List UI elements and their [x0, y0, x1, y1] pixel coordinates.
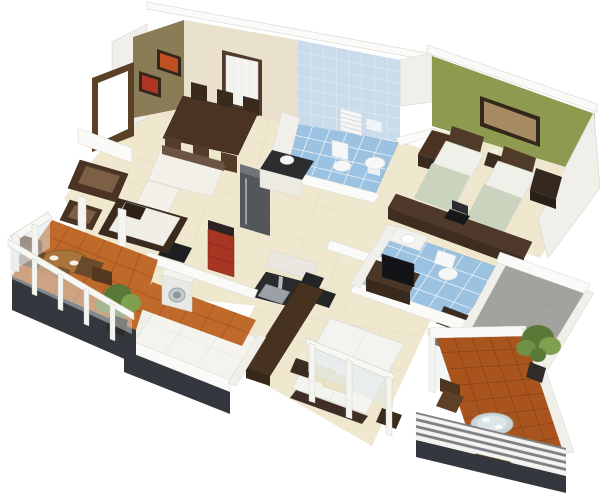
rail-post-a3 — [386, 376, 392, 436]
floorplan-canvas — [0, 0, 600, 495]
right-napkin-1 — [482, 418, 490, 423]
right-napkin-2 — [495, 425, 503, 430]
sink1-bowl — [365, 157, 385, 169]
toilet2-bowl — [439, 268, 458, 280]
lrail-sw-post4 — [110, 303, 115, 341]
sink2-basin — [401, 235, 415, 244]
rail-post-a2 — [346, 359, 352, 419]
rbalc-band-north — [430, 326, 526, 338]
lrail-sw-post2 — [58, 273, 63, 311]
left-plate-1 — [50, 256, 59, 261]
lrail-sw-post3 — [84, 288, 89, 326]
basin-bowl — [280, 156, 294, 165]
left-plate-2 — [70, 261, 79, 266]
nightstand-lamp — [492, 148, 499, 154]
right-plant-d — [530, 348, 546, 362]
toilet1-bowl — [333, 161, 351, 172]
lrail-sw-post1 — [32, 258, 37, 296]
floor-plan-render — [0, 0, 600, 495]
fridge-handle — [245, 178, 247, 225]
rail-post-a1 — [309, 343, 315, 403]
bedroom-west-stub — [400, 53, 432, 106]
rail-post-b1 — [429, 331, 435, 393]
washer-door-inner — [173, 292, 181, 299]
red-cabinet-face — [208, 229, 234, 277]
master-lamp-west — [300, 352, 307, 358]
